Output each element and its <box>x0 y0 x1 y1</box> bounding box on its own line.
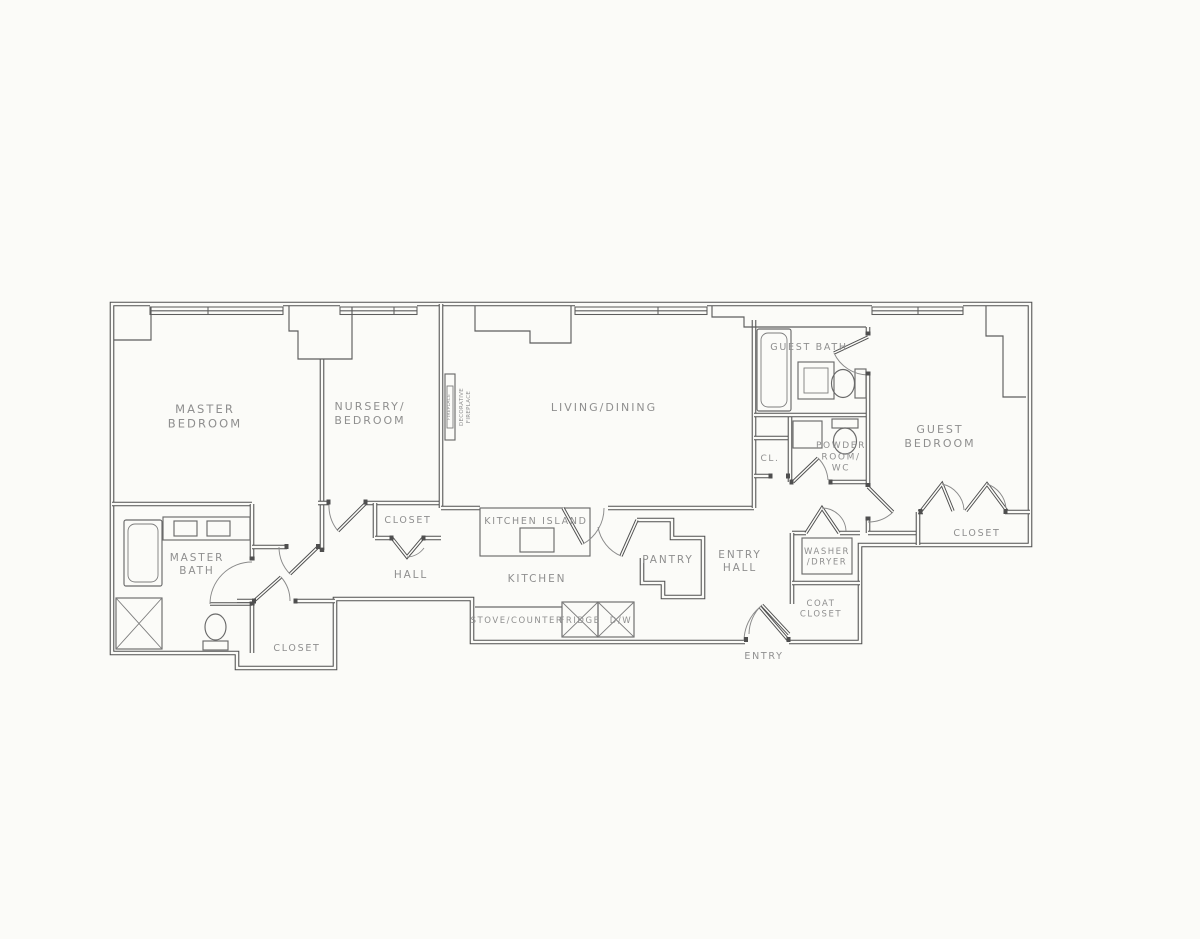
washer-dryer-door <box>806 508 846 533</box>
guest-bath-label: GUEST BATH <box>770 342 848 353</box>
guest-bedroom-label: GUESTBEDROOM <box>904 423 975 450</box>
master-bedroom-door <box>279 547 318 574</box>
interior-walls <box>112 304 1030 653</box>
wall-detail-lines <box>114 306 1026 397</box>
opening-punches <box>150 303 963 647</box>
master-closet-label: CLOSET <box>273 643 320 654</box>
windows <box>150 307 963 315</box>
door-jambs <box>250 332 1008 643</box>
coat-closet-label: COATCLOSET <box>800 599 842 620</box>
entry-hall-label: ENTRYHALL <box>718 549 761 574</box>
floorplan-page: MASTERBEDROOMNURSERY/BEDROOMLIVING/DININ… <box>0 0 1200 939</box>
fridge-label: FRIDGE <box>560 616 601 626</box>
master-bath-label: MASTERBATH <box>170 552 225 577</box>
window-guest-bedroom <box>872 307 963 315</box>
pantry-door <box>598 520 637 556</box>
fireplace-inner-label: FIREPLACE <box>446 394 452 420</box>
pantry-label: PANTRY <box>642 554 694 566</box>
nursery-closet-door <box>392 538 424 557</box>
page: { "canvas": { "width": 1200, "height": 9… <box>0 0 1200 939</box>
living-dining-label: LIVING/DINING <box>551 401 657 414</box>
floorplan-svg: MASTERBEDROOMNURSERY/BEDROOMLIVING/DININ… <box>0 0 1200 939</box>
decorative-fireplace-label: DECORATIVEFIREPLACE <box>459 388 472 426</box>
window-master-bedroom <box>150 307 283 315</box>
hall-closet-cl-label: CL. <box>760 454 779 464</box>
stove-counter-label: STOVE/COUNTER <box>471 616 564 626</box>
guest-bath-toilet-icon <box>832 369 867 398</box>
guest-bath-vanity-icon <box>798 362 834 399</box>
master-bath-tub-icon <box>124 520 162 586</box>
nursery-door <box>329 503 366 531</box>
guest-bedroom-door <box>868 487 893 522</box>
kitchen-label: KITCHEN <box>508 573 567 585</box>
guest-bedroom-closet-label: CLOSET <box>953 528 1000 539</box>
master-bath-toilet-icon <box>203 614 228 650</box>
master-bath-door <box>210 562 252 604</box>
dishwasher-label: D/W <box>610 616 632 626</box>
washer-dryer-label: WASHER/DRYER <box>804 547 850 568</box>
master-bath-vanity-icon <box>163 517 250 540</box>
powder-room-wc-label: POWDERROOM/WC <box>816 441 866 474</box>
window-living-dining <box>575 307 707 315</box>
labels-layer: MASTERBEDROOMNURSERY/BEDROOMLIVING/DININ… <box>168 342 1001 662</box>
nursery-bedroom-label: NURSERY/BEDROOM <box>334 400 405 427</box>
nursery-closet-label: CLOSET <box>384 515 431 526</box>
kitchen-island-label: KITCHEN ISLAND <box>484 516 587 527</box>
master-bedroom-label: MASTERBEDROOM <box>168 402 243 430</box>
doors <box>210 337 1007 641</box>
hall-label: HALL <box>394 569 428 581</box>
entry-label: ENTRY <box>744 651 783 662</box>
master-closet-door <box>254 577 290 601</box>
guest-closet-bifold-doors <box>921 484 1007 511</box>
master-bath-shower-icon <box>116 598 162 649</box>
